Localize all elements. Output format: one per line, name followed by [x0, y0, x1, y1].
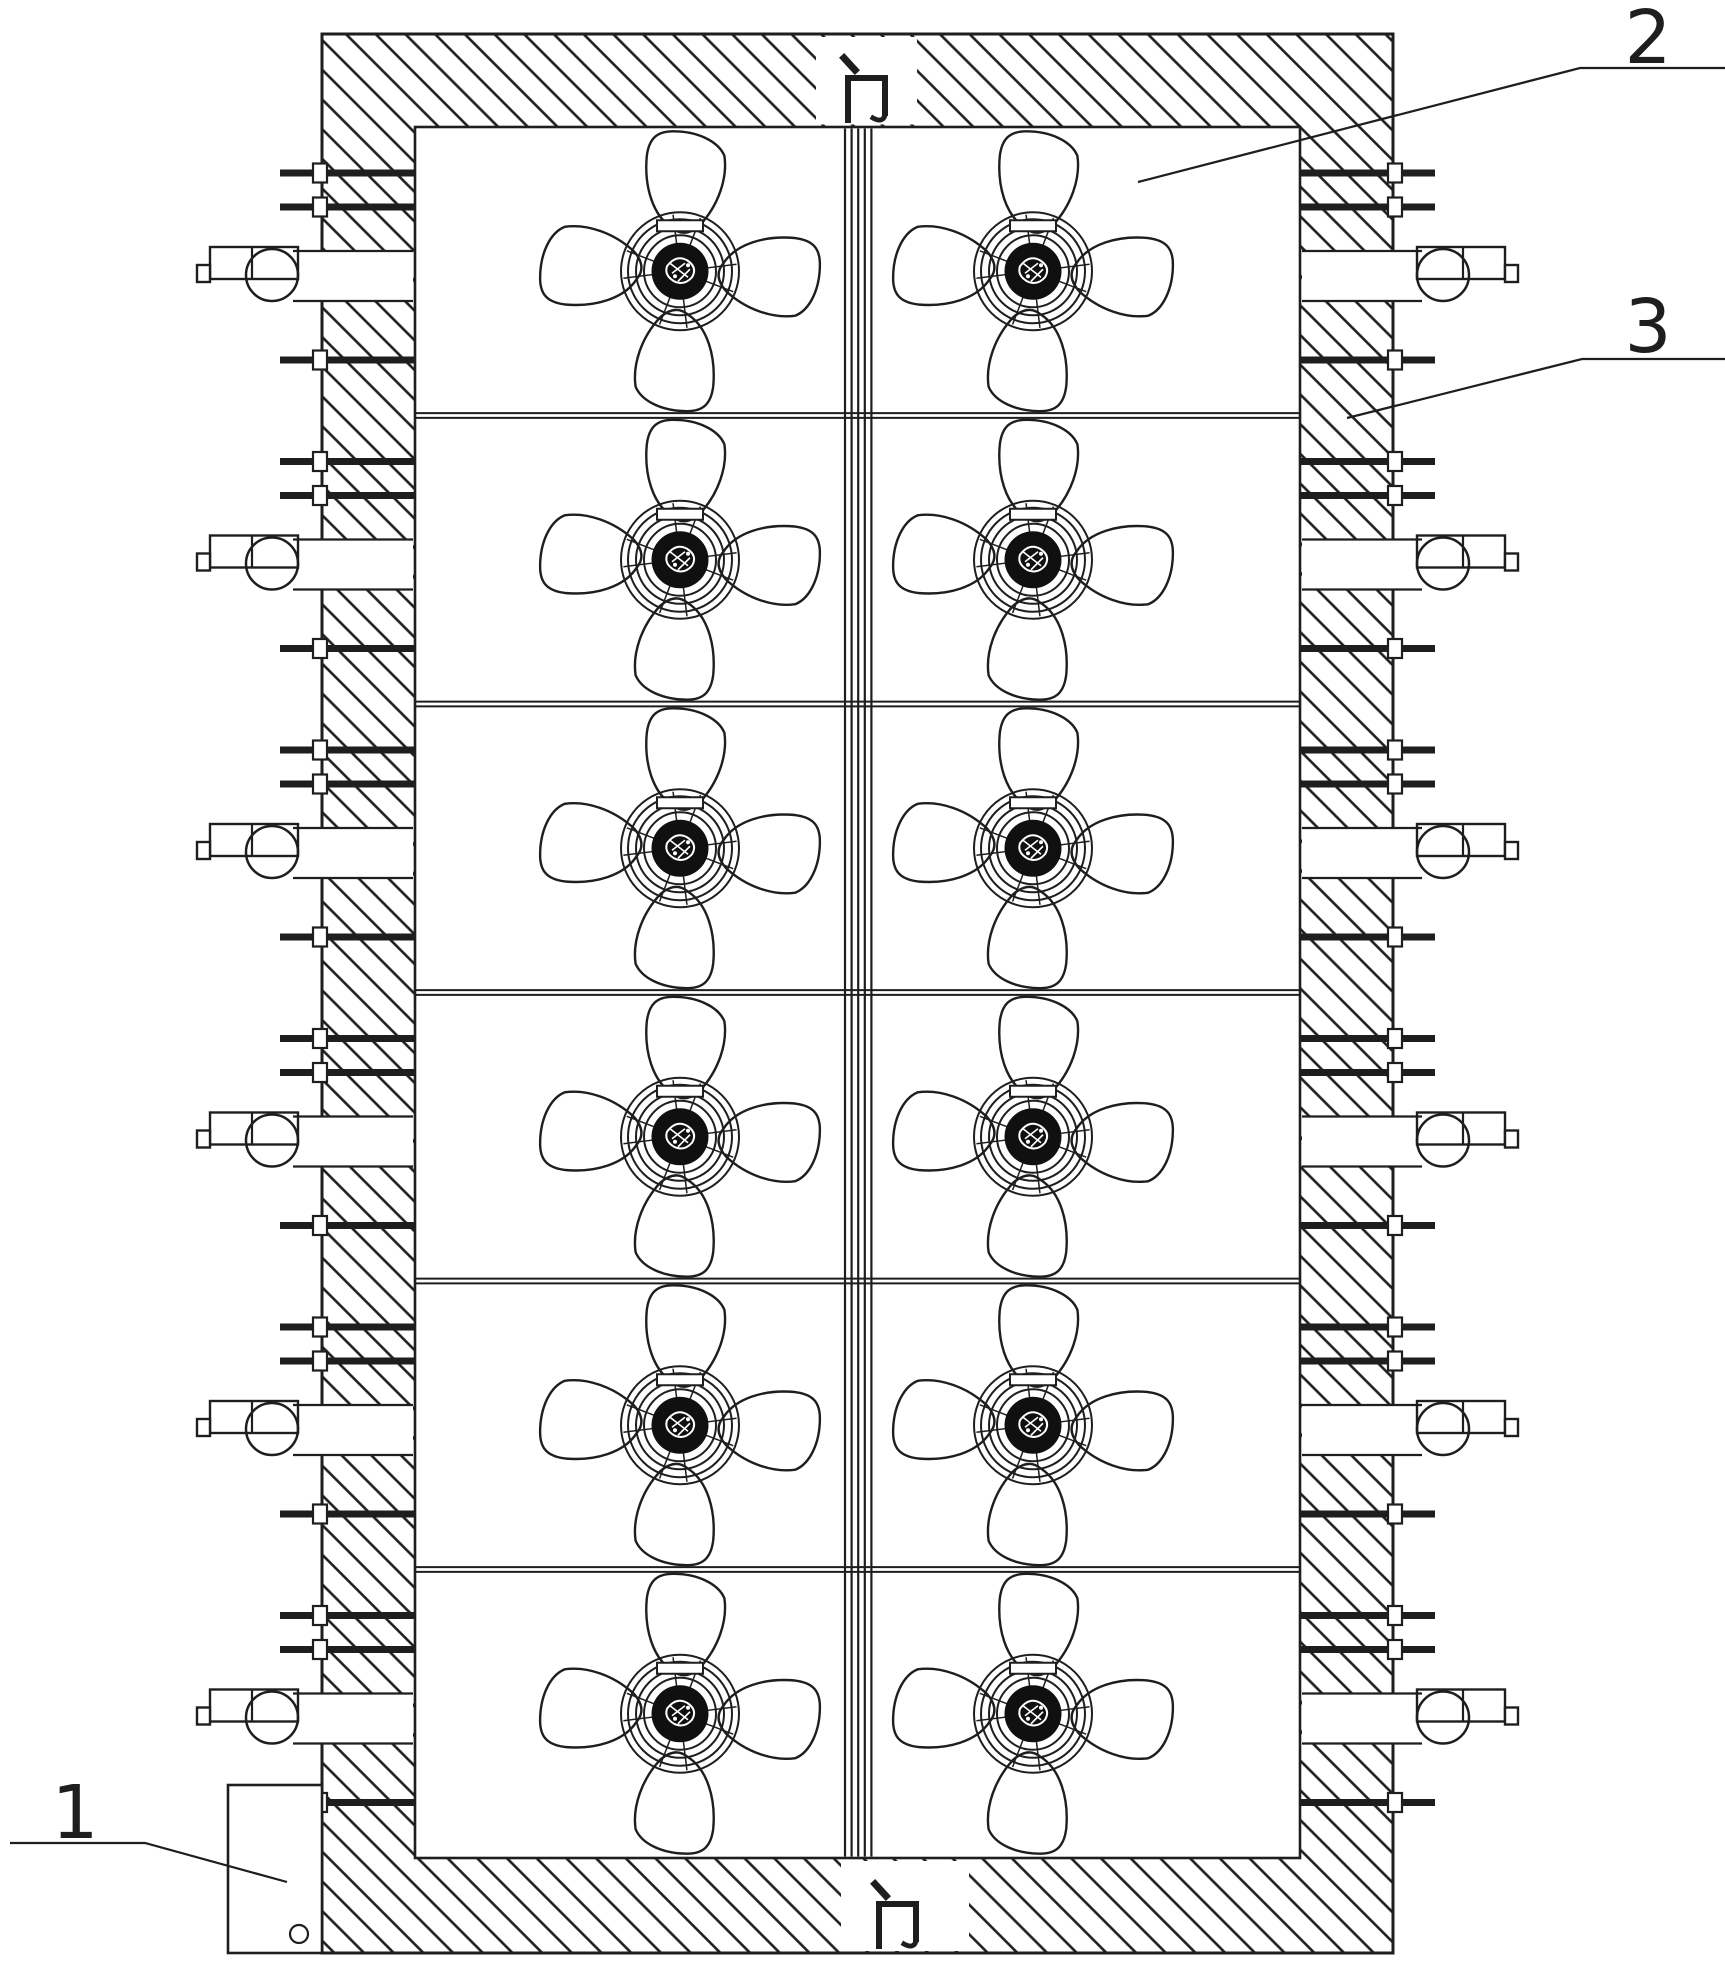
- wall-opening: [293, 251, 413, 301]
- pipe-flange: [313, 486, 327, 505]
- valve-body: [246, 826, 298, 878]
- pipe-flange: [313, 1505, 327, 1524]
- wall-opening: [293, 828, 413, 878]
- drying-room-drawing: 1 2 3: [0, 0, 1725, 1967]
- valve-body: [246, 1692, 298, 1744]
- wall-opening: [293, 1405, 413, 1455]
- pipe-flange: [313, 928, 327, 947]
- control-box-hole: [290, 1925, 308, 1943]
- valve-handle: [197, 554, 210, 571]
- valve-body: [246, 249, 298, 301]
- pipe-flange: [313, 1640, 327, 1659]
- valve: [197, 247, 298, 301]
- pipe-flange: [313, 1606, 327, 1625]
- valve-handle: [197, 265, 210, 282]
- pipe-flange: [313, 351, 327, 370]
- pipe-flange: [313, 1029, 327, 1048]
- ref-label-2: 2: [1624, 0, 1671, 81]
- pipe-flange: [313, 1216, 327, 1235]
- wall-opening: [293, 1694, 413, 1744]
- pipe-flange: [313, 1318, 327, 1337]
- valve: [197, 824, 298, 878]
- valve-handle: [197, 1708, 210, 1725]
- pipe-flange: [313, 164, 327, 183]
- ref-label-3: 3: [1624, 284, 1671, 370]
- valve-handle: [197, 842, 210, 859]
- valve-handle: [197, 1419, 210, 1436]
- valve: [197, 1401, 298, 1455]
- pipe-flange: [313, 452, 327, 471]
- pipe-flange: [313, 775, 327, 794]
- pipe-flange: [313, 1063, 327, 1082]
- pipe-flange: [313, 198, 327, 217]
- pipe-flange: [313, 639, 327, 658]
- ref-label-1: 1: [51, 1770, 98, 1856]
- wall-opening: [293, 1117, 413, 1167]
- pipe-flange: [313, 1352, 327, 1371]
- valve: [197, 536, 298, 590]
- valve-body: [246, 538, 298, 590]
- valve-body: [246, 1403, 298, 1455]
- patent-figure: 1 2 3: [0, 0, 1725, 1967]
- valve: [197, 1690, 298, 1744]
- valve-body: [246, 1115, 298, 1167]
- pipe-flange: [313, 741, 327, 760]
- valve-handle: [197, 1131, 210, 1148]
- valve: [197, 1113, 298, 1167]
- wall-opening: [293, 540, 413, 590]
